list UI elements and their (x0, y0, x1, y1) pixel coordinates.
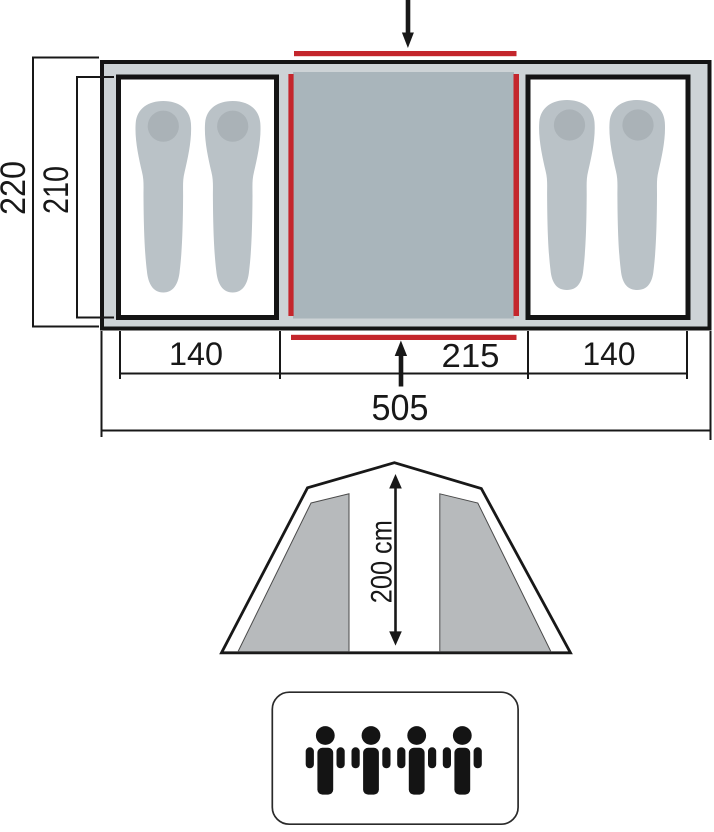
svg-text:215: 215 (442, 337, 500, 374)
svg-text:210: 210 (37, 166, 76, 214)
svg-text:505: 505 (372, 387, 429, 428)
svg-text:140: 140 (169, 336, 223, 372)
svg-text:200 cm: 200 cm (366, 520, 399, 603)
svg-text:140: 140 (583, 336, 636, 372)
svg-text:220: 220 (0, 161, 33, 215)
